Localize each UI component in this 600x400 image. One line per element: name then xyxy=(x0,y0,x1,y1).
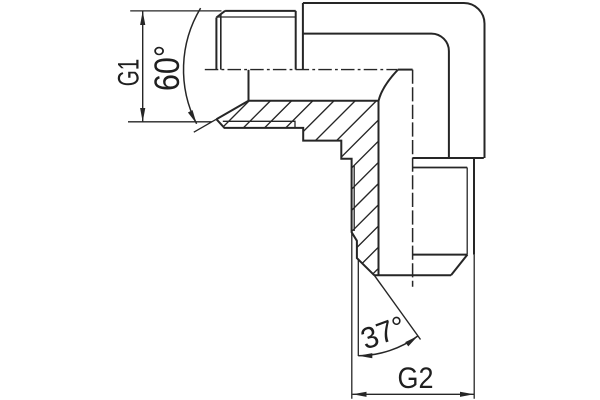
svg-text:G1: G1 xyxy=(112,59,145,87)
svg-text:G2: G2 xyxy=(398,362,434,395)
svg-text:37°: 37° xyxy=(357,310,411,356)
svg-text:60°: 60° xyxy=(148,45,187,91)
